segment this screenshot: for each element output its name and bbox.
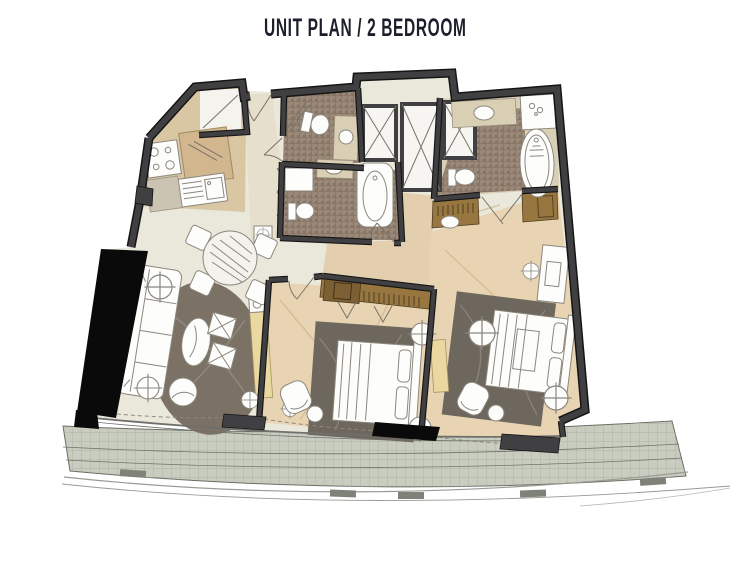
pouf-2 [307, 406, 323, 422]
bed-master [485, 306, 577, 399]
mbath-toilet [448, 169, 475, 186]
bath2-toilet [288, 203, 314, 220]
pier-window-left-end [74, 410, 99, 429]
pier-window-living [222, 414, 266, 430]
kitchen-sink-counter [178, 173, 227, 207]
mbath-shower [520, 94, 556, 130]
bath1-sink [339, 130, 353, 144]
bath2-closet [285, 168, 313, 191]
bed-2 [332, 336, 422, 430]
mbath-sink [474, 106, 494, 120]
round-chair [169, 378, 197, 406]
pier-kitchen-wall [135, 186, 153, 206]
bath2-tub [357, 163, 393, 227]
floorplan-drawing [0, 0, 730, 572]
dresser-master [430, 340, 449, 393]
pouf-m [488, 405, 504, 421]
floorplan-page: UNIT PLAN / 2 BEDROOM [0, 0, 730, 572]
desk-m [537, 245, 570, 304]
ottoman-m [441, 216, 459, 228]
